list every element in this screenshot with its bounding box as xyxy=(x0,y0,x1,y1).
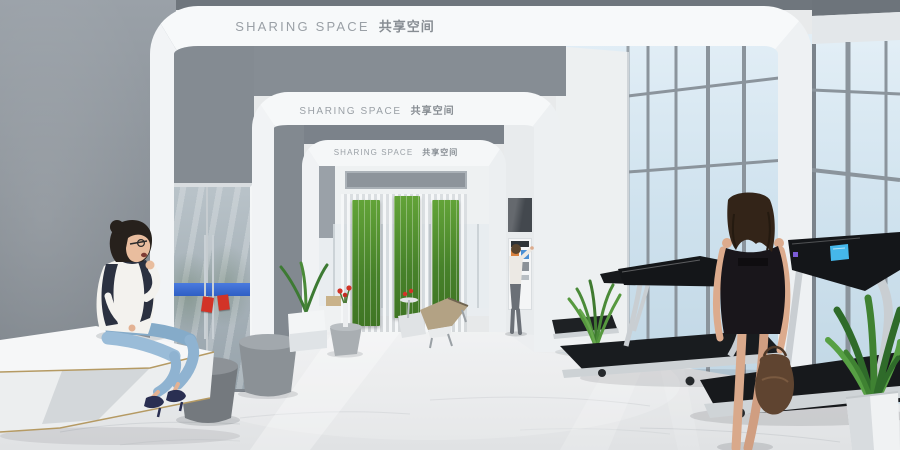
sign-text-en: SHARING SPACE xyxy=(299,106,401,117)
sign-text-zh: 共享空间 xyxy=(411,106,455,117)
flower-stool xyxy=(330,285,362,356)
potted-plant-mid xyxy=(569,281,620,348)
lounge-chair[interactable] xyxy=(398,289,468,348)
gray-pouf-back[interactable] xyxy=(239,334,297,397)
sign-text-zh: 共享空间 xyxy=(379,19,435,34)
portal-3-sign: SHARING SPACE共享空间 xyxy=(316,147,476,158)
sign-text-en: SHARING SPACE xyxy=(334,148,414,157)
portal-2-sign: SHARING SPACE共享空间 xyxy=(287,102,467,117)
standing-person xyxy=(509,244,534,333)
portal-1-sign: SHARING SPACE共享空间 xyxy=(235,16,435,35)
sign-text-zh: 共享空间 xyxy=(422,148,458,157)
sign-text-en: SHARING SPACE xyxy=(235,19,370,34)
sharing-space-interior-rendering: SHARING SPACE共享空间 SHARING SPACE共享空间 SHAR… xyxy=(0,0,900,450)
foreground-objects xyxy=(0,0,900,450)
